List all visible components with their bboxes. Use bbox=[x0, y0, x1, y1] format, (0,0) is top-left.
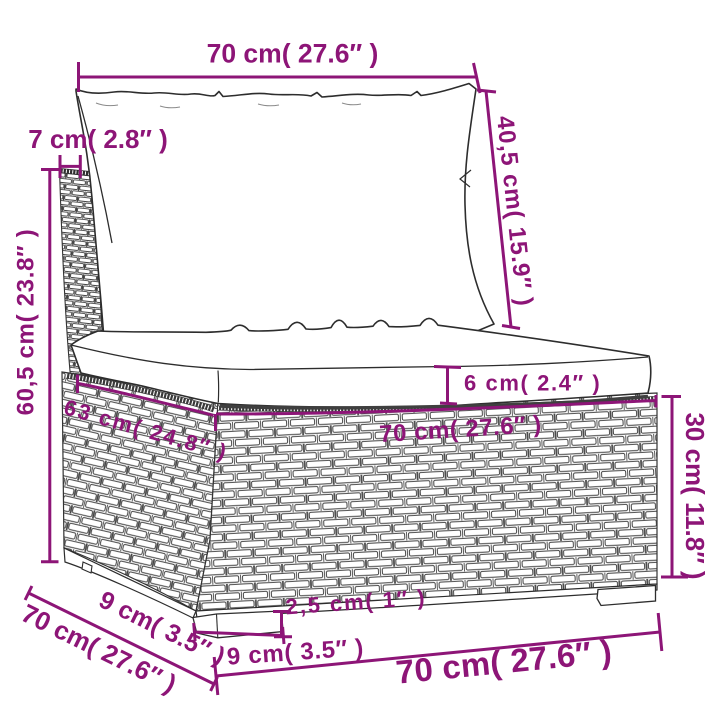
svg-text:7 cm( 2.8″ ): 7 cm( 2.8″ ) bbox=[28, 124, 168, 154]
svg-text:30 cm( 11.8″ ): 30 cm( 11.8″ ) bbox=[680, 412, 710, 579]
svg-text:70 cm( 27.6″ ): 70 cm( 27.6″ ) bbox=[207, 39, 379, 69]
svg-text:6 cm( 2.4″ ): 6 cm( 2.4″ ) bbox=[464, 371, 601, 396]
svg-text:60,5 cm( 23.8″ ): 60,5 cm( 23.8″ ) bbox=[13, 229, 40, 416]
